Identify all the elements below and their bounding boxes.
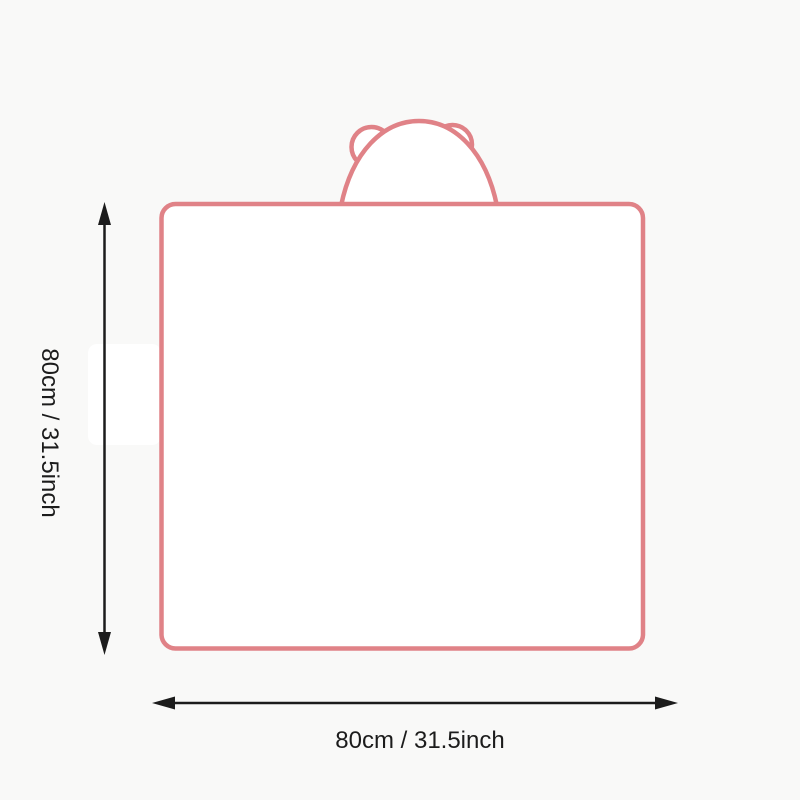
highlight-patch — [88, 344, 161, 445]
dimension-diagram: 80cm / 31.5inch 80cm / 31.5inch — [0, 0, 800, 800]
diagram-artwork — [0, 0, 800, 800]
width-dimension-label: 80cm / 31.5inch — [335, 729, 504, 753]
width-arrow-icon — [152, 697, 678, 710]
height-dimension-label: 80cm / 31.5inch — [37, 348, 61, 517]
blanket-outline — [162, 204, 644, 649]
